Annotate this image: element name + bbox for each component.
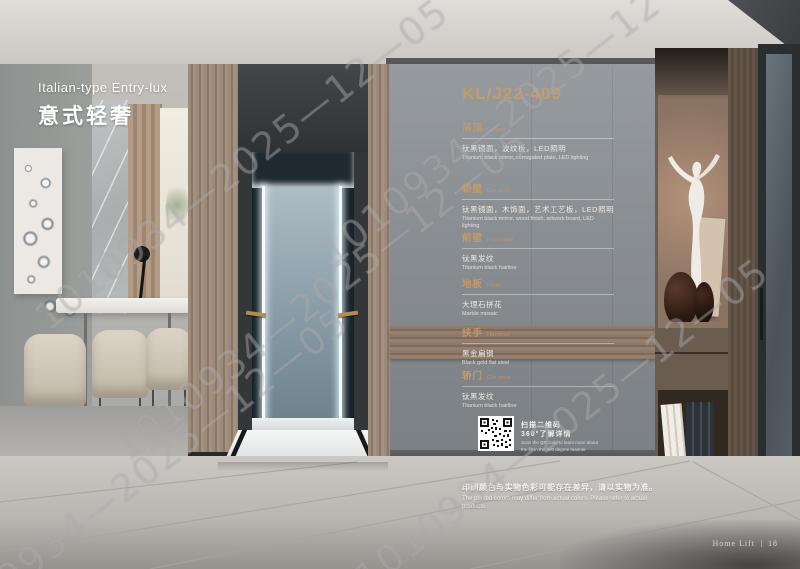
wood-pillar-right xyxy=(368,64,390,462)
brochure-page: KL/J22-409 吊顶Ceiling 钛黑镜面，波纹板，LED照明 Tita… xyxy=(0,0,800,569)
spec-handrail: 扶手Handrail 黑金扁钢 Black gold flat steel xyxy=(462,325,652,367)
elevator-header-panel xyxy=(238,64,368,152)
plant xyxy=(166,180,188,230)
spec-heading: 轿门Car door xyxy=(462,368,652,382)
spec-desc-en: Titanium black mirror, wood finish, artw… xyxy=(462,216,612,230)
spec-desc-en: Black gold flat steel xyxy=(462,360,612,367)
spec-heading: 扶手Handrail xyxy=(462,325,652,339)
series-title-zh: 意式轻奢 xyxy=(38,100,134,130)
elevator-frame-right xyxy=(354,152,368,462)
spec-heading: 轿壁Car wall xyxy=(462,181,652,195)
marble-wall-panel xyxy=(92,100,130,314)
vase xyxy=(664,272,698,326)
cab-marble-floor xyxy=(252,418,354,430)
spec-desc-zh: 钛黑镜面，木饰面，艺术工艺板，LED照明 xyxy=(462,204,652,215)
drawer-gap xyxy=(655,352,728,354)
spec-desc-zh: 钛黑发纹 xyxy=(462,391,652,402)
door-handle xyxy=(760,288,763,340)
spec-heading: 吊顶Ceiling xyxy=(462,120,652,134)
spec-desc-en: Marble mosaic xyxy=(462,311,612,318)
brand-name: Home Lift xyxy=(712,539,755,548)
spec-rule xyxy=(462,343,614,344)
qr-pattern xyxy=(480,418,512,449)
spec-heading: 地板Floor xyxy=(462,276,652,290)
spec-rule xyxy=(462,386,614,387)
books-dark xyxy=(686,402,713,462)
spec-desc-en: Titanium black hairline xyxy=(462,403,612,410)
vase xyxy=(694,282,714,324)
disclaimer-zh: 印刷颜色与实物色彩可能存在差异，请以实物为准。 xyxy=(462,482,687,493)
qr-caption-en-1: Scan the QR code to learn more about xyxy=(521,440,641,446)
curtain xyxy=(128,104,162,304)
disclaimer-en: The printed colors may differ from actua… xyxy=(462,496,672,511)
spec-desc-en: Titanium black hairline xyxy=(462,265,612,272)
led-strip-left xyxy=(262,186,265,422)
cabinet-side-column xyxy=(728,48,758,480)
led-strip-right xyxy=(339,186,342,422)
bottom-dark-band xyxy=(0,556,800,569)
spec-ceiling: 吊顶Ceiling 钛黑镜面，波纹板，LED照明 Titanium black … xyxy=(462,120,652,162)
cab-side-wall-right xyxy=(342,188,354,418)
qr-code xyxy=(478,416,514,451)
qr-caption: 扫描二维码 360°了解详情 Scan the QR code to learn… xyxy=(521,421,641,452)
qr-caption-zh-1: 扫描二维码 xyxy=(521,421,641,430)
spec-rule xyxy=(462,199,614,200)
series-title-en: Italian-type Entry-lux xyxy=(38,80,168,95)
spec-desc-zh: 黑金扁钢 xyxy=(462,348,652,359)
threshold-shadow xyxy=(218,462,388,471)
dining-chair xyxy=(92,330,148,398)
spec-desc-zh: 钛黑镜面，波纹板，LED照明 xyxy=(462,143,652,154)
cab-back-panel xyxy=(264,188,340,418)
spec-desc-zh: 钛黑发纹 xyxy=(462,253,652,264)
dining-chair xyxy=(24,334,86,406)
spec-car-door: 轿门Car door 钛黑发纹 Titanium black hairline xyxy=(462,368,652,410)
spec-desc-en: Titanium black mirror, corrugated plate,… xyxy=(462,155,612,162)
wood-pillar-left xyxy=(188,64,238,456)
footer-divider xyxy=(761,540,762,547)
qr-caption-zh-2: 360°了解详情 xyxy=(521,430,641,439)
spec-heading: 前壁Front wall xyxy=(462,230,652,244)
spec-floor: 地板Floor 大理石拼花 Marble mosaic xyxy=(462,276,652,318)
spec-rule xyxy=(462,138,614,139)
model-number: KL/J22-409 xyxy=(462,84,562,104)
dining-chair xyxy=(146,328,192,390)
qr-caption-en-2: the lift in the 360 degree manner xyxy=(521,447,641,453)
spec-front-wall: 前壁Front wall 钛黑发纹 Titanium black hairlin… xyxy=(462,230,652,272)
door-glass-panel xyxy=(766,54,792,472)
spec-rule xyxy=(462,294,614,295)
spec-desc-zh: 大理石拼花 xyxy=(462,299,652,310)
spec-rule xyxy=(462,248,614,249)
wall-art-panel xyxy=(14,148,62,294)
page-number: 18 xyxy=(768,539,778,548)
elevator-frame-left xyxy=(238,152,252,462)
dining-table xyxy=(56,298,190,313)
print-disclaimer: 印刷颜色与实物色彩可能存在差异，请以实物为准。 The printed colo… xyxy=(462,482,687,511)
niche-shelf xyxy=(658,322,728,328)
elevator-ripple-ceiling xyxy=(252,152,354,188)
page-footer: Home Lift 18 xyxy=(712,539,778,548)
spec-car-wall: 轿壁Car wall 钛黑镜面，木饰面，艺术工艺板，LED照明 Titanium… xyxy=(462,181,652,230)
